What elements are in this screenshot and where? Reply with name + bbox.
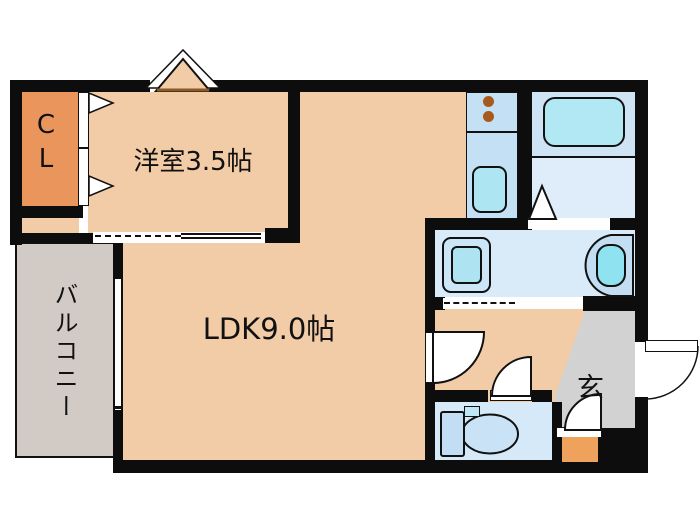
wall-washroom-top-right <box>610 218 640 230</box>
wall-toilet-left <box>425 402 435 460</box>
toilet-flush-unit <box>464 406 480 417</box>
closet-lower-alcove <box>22 218 79 233</box>
room-bathroom-entry <box>532 157 635 219</box>
hallway-door-leaf <box>425 332 435 383</box>
room-ldk-kitchen-area <box>298 92 466 233</box>
bathtub <box>543 97 625 147</box>
washroom-threshold <box>517 298 583 309</box>
wall-toilet-top-left <box>435 390 488 402</box>
folding-door-divider <box>79 147 88 149</box>
wall-washroom-bottom-right <box>583 296 648 311</box>
counter-divider <box>467 131 517 133</box>
wall-washroom-left-lower <box>425 383 435 402</box>
wall-western-room-bottom <box>265 228 298 243</box>
wall-toilet-top-right <box>532 390 552 402</box>
wall-top-left <box>10 80 150 92</box>
sliding-track-dashed <box>95 235 181 237</box>
washroom-sliding-door <box>443 298 517 309</box>
front-door-swing <box>645 346 698 399</box>
bay-window-outer <box>146 50 220 88</box>
sliding-track-dashed <box>444 302 515 304</box>
bathroom-divider-line <box>532 156 635 158</box>
wall-balcony-top <box>10 233 95 243</box>
wall-top-right <box>210 80 648 92</box>
western-room-sliding-partition <box>93 232 265 243</box>
label-entrance: 玄 <box>577 366 604 405</box>
stove-burner-1 <box>483 96 494 107</box>
label-balcony: バルコニー <box>47 282 82 452</box>
front-door-leaf <box>645 340 698 352</box>
wall-entrance-corner-block <box>598 428 648 473</box>
wall-ldk-left-lower <box>113 408 123 462</box>
window-sash-tick <box>115 406 121 409</box>
floorplan: CL 洋室3.5帖 LDK9.0帖 バルコニー 玄 <box>0 0 700 525</box>
kitchen-sink <box>472 166 507 213</box>
stove-burner-2 <box>483 111 494 122</box>
bathroom-threshold <box>528 218 610 229</box>
label-ldk: LDK9.0帖 <box>113 306 425 348</box>
label-closet: CL <box>31 110 71 178</box>
bay-window-inner <box>156 59 210 91</box>
sliding-panels <box>181 233 261 239</box>
toilet-tank <box>440 411 465 457</box>
wall-left <box>10 80 22 245</box>
wall-washroom-left-upper <box>425 230 435 332</box>
washing-machine <box>451 246 482 284</box>
wall-closet-bottom <box>10 206 83 218</box>
wall-washroom-top-left <box>425 218 528 230</box>
toilet-door-leaf <box>490 390 532 401</box>
entrance-step <box>562 437 598 462</box>
wall-kitchen-bath <box>518 80 532 230</box>
label-western-room: 洋室3.5帖 <box>88 141 298 178</box>
